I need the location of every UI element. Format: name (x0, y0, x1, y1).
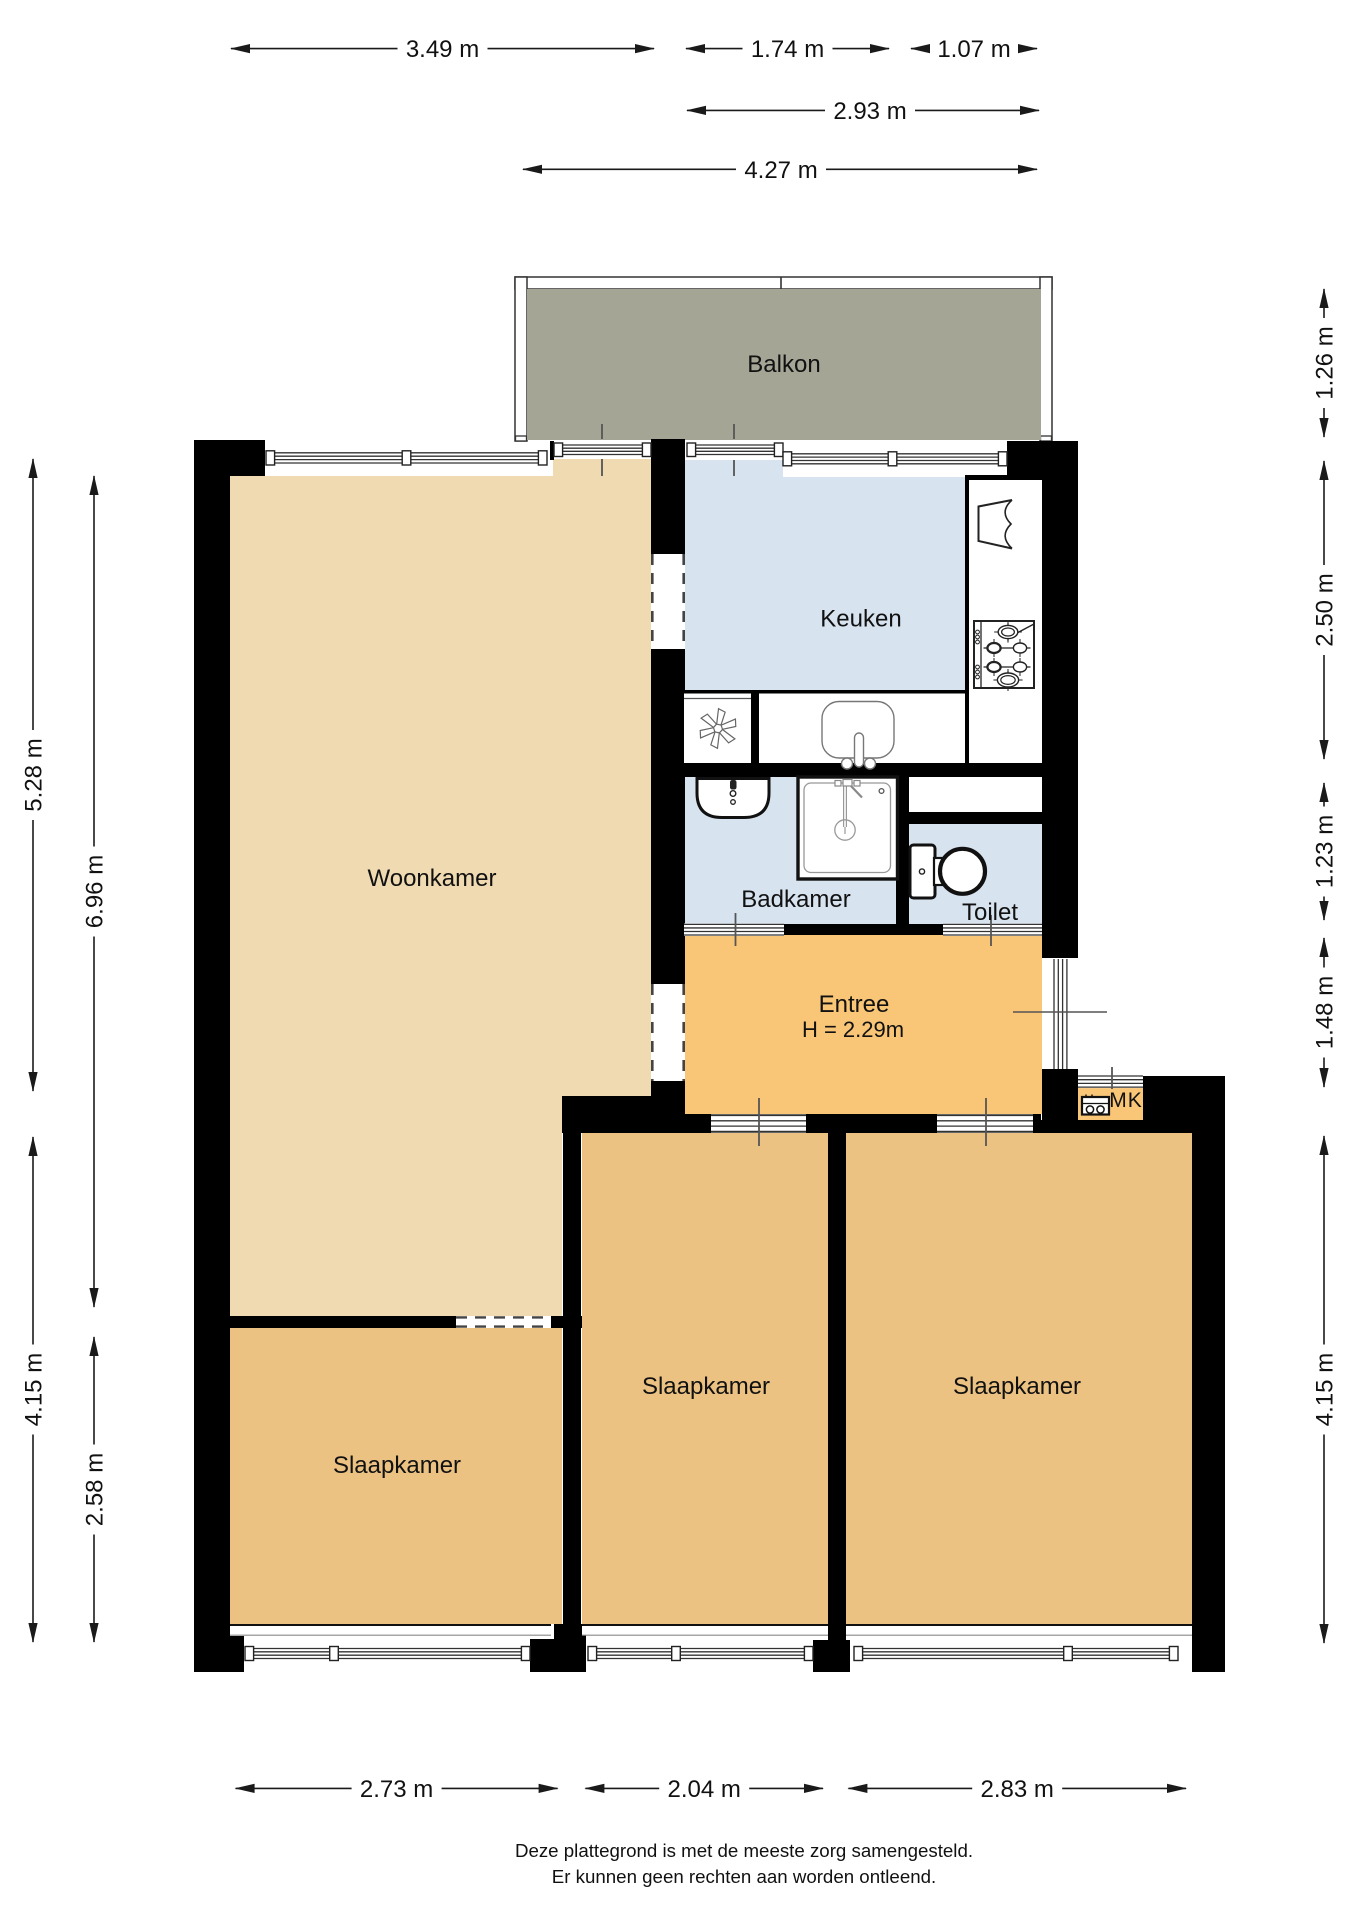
svg-text:Deze plattegrond is met de mee: Deze plattegrond is met de meeste zorg s… (515, 1840, 973, 1861)
svg-text:2.50 m: 2.50 m (1312, 573, 1339, 646)
svg-text:Slaapkamer: Slaapkamer (953, 1373, 1081, 1400)
svg-text:1.07 m: 1.07 m (937, 36, 1010, 63)
svg-text:Woonkamer: Woonkamer (368, 865, 497, 892)
svg-text:4.15 m: 4.15 m (21, 1353, 48, 1426)
svg-text:1.48 m: 1.48 m (1312, 976, 1339, 1049)
svg-text:Slaapkamer: Slaapkamer (642, 1373, 770, 1400)
svg-text:4.15 m: 4.15 m (1312, 1353, 1339, 1426)
svg-text:1.23 m: 1.23 m (1312, 815, 1339, 888)
svg-text:2.04 m: 2.04 m (668, 1776, 741, 1803)
svg-text:Balkon: Balkon (747, 351, 820, 378)
svg-text:3.49 m: 3.49 m (406, 36, 479, 63)
svg-text:Entree: Entree (819, 991, 890, 1018)
svg-text:1.74 m: 1.74 m (751, 36, 824, 63)
svg-text:5.28 m: 5.28 m (21, 738, 48, 811)
svg-text:Slaapkamer: Slaapkamer (333, 1452, 461, 1479)
svg-text:2.83 m: 2.83 m (981, 1776, 1054, 1803)
svg-text:Er kunnen geen rechten aan wor: Er kunnen geen rechten aan worden ontlee… (552, 1866, 936, 1887)
svg-text:2.73 m: 2.73 m (360, 1776, 433, 1803)
svg-text:4.27 m: 4.27 m (744, 157, 817, 184)
svg-text:Badkamer: Badkamer (741, 886, 850, 913)
svg-text:6.96 m: 6.96 m (82, 855, 109, 928)
svg-text:MK: MK (1109, 1089, 1143, 1112)
svg-text:2.58 m: 2.58 m (82, 1453, 109, 1526)
svg-text:2.93 m: 2.93 m (833, 98, 906, 125)
svg-text:Toilet: Toilet (962, 899, 1018, 926)
svg-text:1.26 m: 1.26 m (1312, 326, 1339, 399)
svg-text:Keuken: Keuken (820, 606, 901, 633)
svg-text:H = 2.29m: H = 2.29m (802, 1017, 904, 1042)
